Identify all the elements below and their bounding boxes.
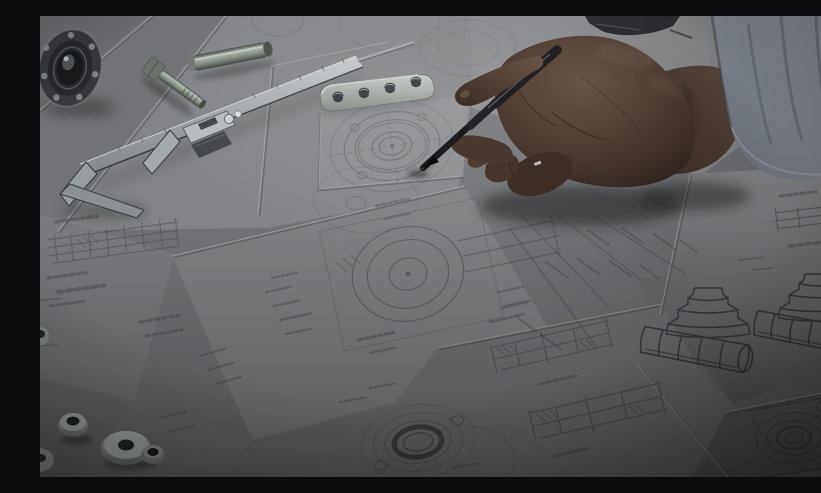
- engineering-drafting-photo: Engineer technician drafting mechanical …: [40, 16, 821, 477]
- dark-overlay: [40, 16, 821, 477]
- photo-canvas: [40, 16, 821, 477]
- vignette: [40, 16, 821, 477]
